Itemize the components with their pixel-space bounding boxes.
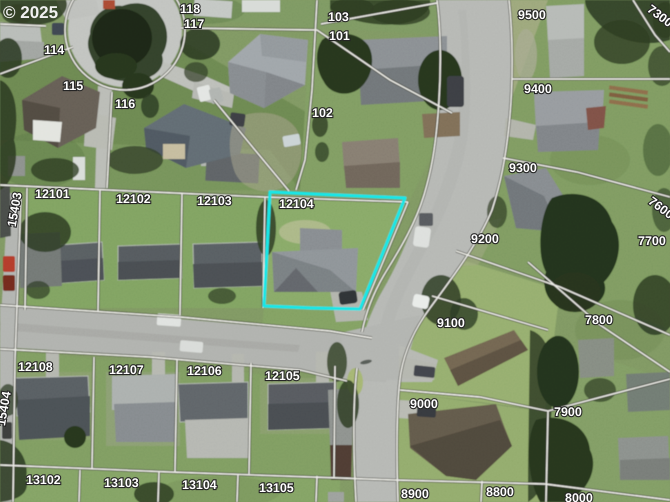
svg-text:103: 103 xyxy=(328,10,349,24)
svg-text:12102: 12102 xyxy=(116,192,151,206)
svg-text:7900: 7900 xyxy=(554,405,582,419)
svg-text:115: 115 xyxy=(63,79,83,93)
svg-text:© 2025: © 2025 xyxy=(3,3,58,22)
svg-text:114: 114 xyxy=(44,43,64,57)
svg-text:12106: 12106 xyxy=(187,364,222,378)
svg-text:101: 101 xyxy=(329,29,350,43)
svg-text:102: 102 xyxy=(312,106,333,120)
svg-text:8000: 8000 xyxy=(565,491,593,502)
svg-text:9400: 9400 xyxy=(524,82,552,96)
svg-text:13102: 13102 xyxy=(26,473,61,487)
svg-text:13105: 13105 xyxy=(259,481,294,495)
svg-text:12108: 12108 xyxy=(18,360,53,374)
svg-text:118: 118 xyxy=(180,2,200,16)
svg-text:12104: 12104 xyxy=(279,197,314,211)
svg-text:7700: 7700 xyxy=(638,234,666,248)
svg-text:9500: 9500 xyxy=(518,8,546,22)
svg-text:13104: 13104 xyxy=(182,478,217,492)
svg-text:12105: 12105 xyxy=(265,369,300,383)
svg-text:9200: 9200 xyxy=(471,232,499,246)
svg-text:7800: 7800 xyxy=(585,313,613,327)
svg-text:116: 116 xyxy=(115,97,135,111)
svg-text:12107: 12107 xyxy=(109,363,144,377)
svg-text:13103: 13103 xyxy=(104,476,139,490)
svg-text:9100: 9100 xyxy=(437,316,465,330)
svg-text:9000: 9000 xyxy=(410,397,438,411)
svg-text:8900: 8900 xyxy=(401,487,429,501)
svg-text:12103: 12103 xyxy=(197,194,232,208)
svg-text:8800: 8800 xyxy=(486,485,514,499)
svg-text:117: 117 xyxy=(184,17,204,31)
svg-text:12101: 12101 xyxy=(35,187,70,201)
svg-text:9300: 9300 xyxy=(509,161,537,175)
